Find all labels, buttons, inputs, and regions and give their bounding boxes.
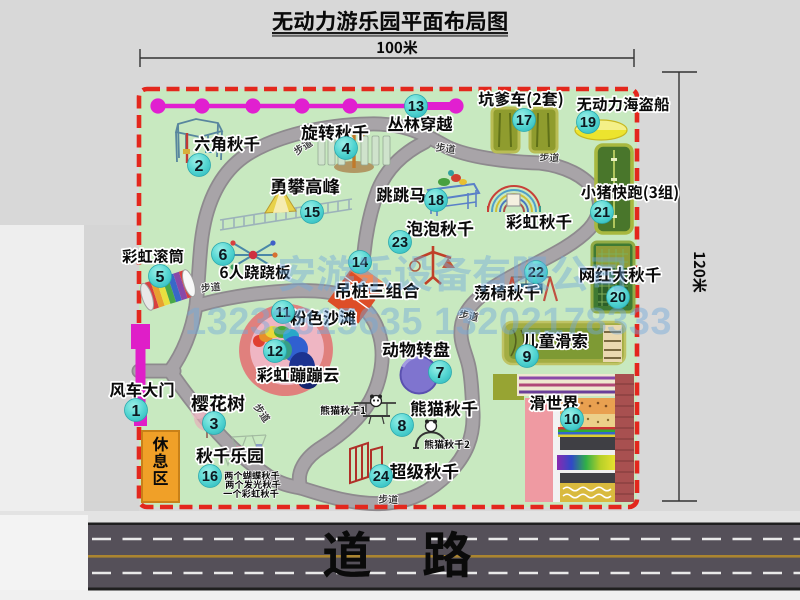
- svg-text:16: 16: [202, 469, 218, 485]
- svg-text:23: 23: [392, 235, 408, 251]
- svg-text:13: 13: [408, 99, 424, 115]
- svg-text:5: 5: [156, 269, 165, 286]
- svg-text:7: 7: [436, 365, 445, 382]
- svg-text:12: 12: [267, 344, 283, 360]
- svg-text:1: 1: [132, 403, 141, 420]
- svg-text:18: 18: [428, 193, 444, 209]
- svg-text:24: 24: [373, 469, 389, 485]
- svg-text:8: 8: [398, 418, 407, 435]
- svg-text:19: 19: [580, 115, 596, 131]
- svg-text:2: 2: [195, 158, 204, 175]
- svg-text:13233815635 13202178333: 13233815635 13202178333: [185, 301, 672, 343]
- svg-text:3: 3: [210, 416, 219, 433]
- svg-text:15: 15: [304, 205, 320, 221]
- svg-text:4: 4: [342, 141, 351, 158]
- svg-text:9: 9: [523, 349, 532, 366]
- svg-text:17: 17: [516, 113, 532, 129]
- svg-text:21: 21: [594, 205, 610, 221]
- svg-text:6: 6: [219, 247, 228, 264]
- svg-text:10: 10: [564, 412, 580, 428]
